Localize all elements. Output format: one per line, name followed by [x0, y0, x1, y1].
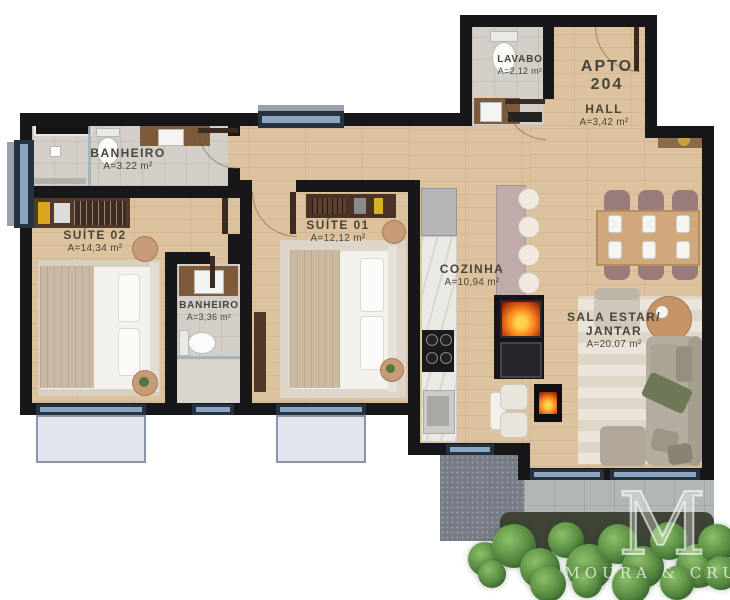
bar-stool: [518, 244, 540, 266]
window-suite02: [36, 404, 146, 415]
wardrobe-towel: [38, 202, 50, 224]
bathroom-sink: [158, 129, 184, 146]
lavabo-sink: [480, 102, 502, 122]
toilet-tank: [490, 31, 518, 42]
wall-suite01-kitchen: [408, 180, 420, 455]
suite01-bed-blanket: [290, 250, 340, 388]
window-corridor: [258, 111, 344, 128]
suite02-bed-blanket: [40, 266, 94, 388]
burner: [426, 352, 438, 364]
plant-shrub: [478, 560, 506, 588]
room-name: COZINHA: [440, 262, 504, 276]
granite-counter: [500, 342, 542, 378]
potted-plant: [139, 377, 149, 387]
window-bathroom-social: [14, 140, 34, 228]
kitchen-sink-basin: [427, 396, 449, 426]
suite02-door-leaf: [222, 198, 228, 234]
place-setting: [608, 241, 622, 259]
wall-right: [702, 126, 714, 480]
room-name-line2: JANTAR: [567, 324, 661, 338]
shelf-decor: [312, 198, 346, 214]
burner: [426, 334, 438, 346]
wardrobe-hanging-clothes: [74, 201, 126, 225]
room-name: BANHEIRO: [179, 300, 239, 311]
room-name: HALL: [579, 102, 628, 116]
dining-chair: [638, 190, 664, 212]
suite01-pillow: [360, 316, 384, 370]
room-label-hall: HALL A=3,42 m²: [579, 102, 628, 128]
stool-seat: [500, 384, 528, 410]
room-name: BANHEIRO: [90, 146, 165, 160]
shelf-box: [354, 198, 366, 214]
room-label-bathroom-suite: BANHEIRO A=3,36 m²: [179, 300, 239, 322]
wall-lavabo-left: [460, 15, 472, 126]
wall-bathroom-suite-left: [165, 252, 177, 403]
room-area: A=12,12 m²: [306, 233, 369, 244]
wall-hall-right: [645, 15, 657, 138]
suite02-pillow: [118, 274, 140, 322]
bar-stool: [518, 216, 540, 238]
place-setting: [608, 215, 622, 233]
wall-closet-b: [228, 234, 240, 264]
suite01-pillow: [360, 258, 384, 312]
unit-type: APTO: [581, 58, 633, 76]
room-label-suite01: SUÍTE 01 A=12,12 m²: [306, 218, 369, 244]
shower-area: [177, 360, 240, 403]
place-setting: [676, 241, 690, 259]
sofa-pillow: [667, 442, 694, 465]
window-suite01: [276, 404, 366, 415]
window-kitchen: [446, 444, 494, 455]
dining-chair: [672, 190, 698, 212]
room-name: SALA ESTAR/: [567, 310, 661, 324]
bathroom-sink: [194, 270, 224, 294]
sofa-cushion: [676, 346, 692, 382]
dresser: [254, 312, 266, 392]
shower-drain: [34, 178, 86, 184]
room-area: A=2,12 m²: [497, 66, 543, 76]
room-label-bathroom-social: BANHEIRO A=3.22 m²: [90, 146, 165, 172]
room-area: A=3,36 m²: [179, 312, 239, 322]
wall-bathroom-social-bottom: [20, 186, 240, 198]
wall-top: [460, 15, 657, 27]
floorplan-canvas: LAVABO A=2,12 m² APTO 204 HALL A=3,42 m²…: [0, 0, 730, 600]
nightstand: [132, 236, 158, 262]
wall-lavabo-hall-divider: [543, 27, 554, 99]
grill-fire-window: [500, 300, 542, 338]
shower-head: [50, 146, 61, 157]
room-name: LAVABO: [497, 54, 543, 65]
toilet-bowl: [188, 332, 216, 354]
wall-closet-a: [228, 186, 240, 198]
dining-chair: [604, 190, 630, 212]
window-sill: [7, 142, 14, 226]
room-area: A=3.22 m²: [90, 161, 165, 172]
room-area: A=10,94 m²: [440, 277, 504, 288]
fireplace-fire: [539, 392, 557, 414]
nightstand: [382, 220, 406, 244]
potted-plant: [386, 364, 395, 373]
armchair-back: [594, 288, 640, 300]
room-area: A=3,42 m²: [579, 117, 628, 128]
room-name: SUÍTE 01: [306, 218, 369, 232]
room-label-suite02: SUÍTE 02 A=14,34 m²: [63, 228, 126, 254]
burner: [440, 352, 452, 364]
suite02-pillow: [118, 328, 140, 376]
room-area: A=20.07 m²: [567, 339, 661, 350]
place-setting: [642, 241, 656, 259]
room-label-lavabo: LAVABO A=2,12 m²: [497, 54, 543, 76]
place-setting: [642, 215, 656, 233]
wall-top-left: [20, 113, 472, 126]
wall-bathroom-suite-top-a: [165, 252, 210, 264]
watermark-monogram: M: [618, 482, 706, 568]
unit-label: APTO 204: [581, 58, 633, 94]
refrigerator: [421, 188, 457, 236]
window-living-1: [530, 469, 604, 480]
bar-stool: [518, 272, 540, 294]
shower-glass-panel: [177, 356, 240, 359]
wall-suite01-top: [296, 180, 420, 192]
place-setting: [676, 215, 690, 233]
room-label-sala: SALA ESTAR/ JANTAR A=20.07 m²: [567, 310, 661, 350]
room-label-cozinha: COZINHA A=10,94 m²: [440, 262, 504, 288]
burner: [440, 334, 452, 346]
stool-seat: [500, 412, 528, 438]
unit-number: 204: [581, 76, 633, 94]
room-name: SUÍTE 02: [63, 228, 126, 242]
toilet-tank: [96, 128, 120, 137]
wardrobe-shelf-linens: [54, 203, 70, 223]
ottoman: [600, 426, 646, 466]
shelf-book: [374, 198, 383, 214]
bar-stool: [518, 188, 540, 210]
watermark-studio-name: MOURA & CRUZ: [560, 564, 730, 582]
wall-suite01-left: [240, 180, 252, 403]
room-area: A=14,34 m²: [63, 243, 126, 254]
glass-canopy-suite02: [36, 415, 146, 463]
glass-canopy-suite01: [276, 415, 366, 463]
bathroom-suite-door-leaf: [210, 256, 215, 288]
window-bathroom-suite: [192, 404, 234, 415]
